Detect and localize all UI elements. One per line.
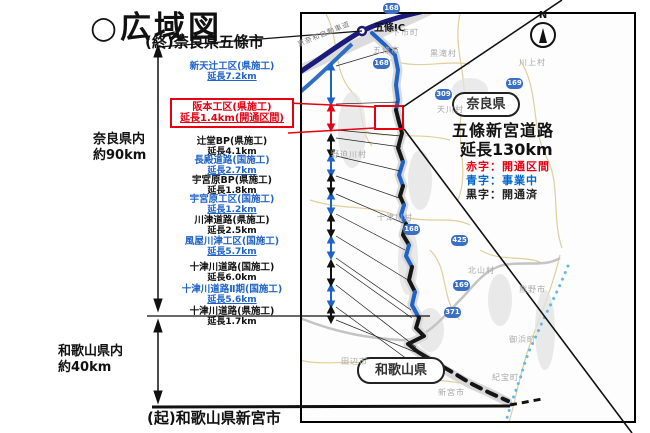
place-label: 十津川村	[377, 212, 413, 223]
route-shield: 309	[435, 89, 452, 100]
route-shield: 169	[506, 78, 523, 89]
route-shield: 371	[444, 307, 461, 318]
segment-label-shintentsuji: 新天辻工区(県施工) 延長7.2km	[167, 61, 297, 83]
segment-label-totsukawa-1: 十津川道路(国施工) 延長6.0km	[167, 262, 297, 284]
segment-label-kazeya-kawazu: 風屋川津工区(国施工) 延長5.7km	[167, 236, 297, 258]
place-label: 熊野市	[519, 284, 546, 295]
wakayama-extent: 和歌山県内 約40km	[58, 344, 123, 376]
place-label: 黒滝村	[430, 48, 457, 59]
place-label: 下市町	[392, 27, 419, 38]
route-shield: 168	[383, 3, 400, 14]
compass: N	[528, 10, 558, 48]
wakayama-prefecture-box: 和歌山県	[357, 357, 445, 384]
route-shield: 425	[451, 235, 468, 246]
place-label: 北山村	[468, 265, 495, 276]
segment-label-sakamoto: 阪本工区(県施工) 延長1.4km(開通区間)	[170, 98, 294, 128]
route-shield: 168	[403, 224, 420, 235]
place-label: 紀宝町	[492, 372, 519, 383]
place-label: 新宮市	[438, 387, 465, 398]
compass-needle-icon	[539, 28, 547, 43]
legend-opened: 黒字：開通済	[466, 186, 538, 202]
segment-label-nagatono: 長殿道路(国施工) 延長2.7km	[167, 155, 297, 177]
route-shield: 168	[373, 58, 390, 69]
compass-n-label: N	[528, 10, 558, 21]
place-label: 川上村	[519, 57, 546, 68]
segment-label-totsukawa-2: 十津川道路Ⅱ期(国施工) 延長5.6km	[167, 284, 297, 306]
nara-extent: 奈良県内 約90km	[93, 132, 146, 164]
segment-label-totsukawa-pref: 十津川道路(県施工) 延長1.7km	[167, 306, 297, 328]
place-label: 田辺市	[341, 356, 368, 367]
route-shield: 169	[453, 280, 470, 291]
endpoint-end-label: (終)奈良県五條市	[145, 31, 264, 52]
endpoint-start-label: (起)和歌山県新宮市	[147, 407, 281, 428]
place-label: 野迫川村	[331, 149, 367, 160]
wide-area-map-figure: ○広域図 (終)奈良県五條市 (起)和歌山県新宮市 奈良県内 約90km 和歌山…	[0, 0, 650, 433]
segment-label-ugunohara-kouku: 宇宮原工区(国施工) 延長1.2km	[167, 194, 297, 216]
compass-icon	[530, 22, 556, 48]
road-summary-length: 延長130km	[460, 136, 553, 160]
segment-label-kawazu: 川津道路(県施工) 延長2.5km	[167, 215, 297, 237]
place-label: 御浜町	[509, 334, 536, 345]
place-label: 五條市	[373, 45, 400, 56]
place-label: 天川村	[437, 104, 464, 115]
